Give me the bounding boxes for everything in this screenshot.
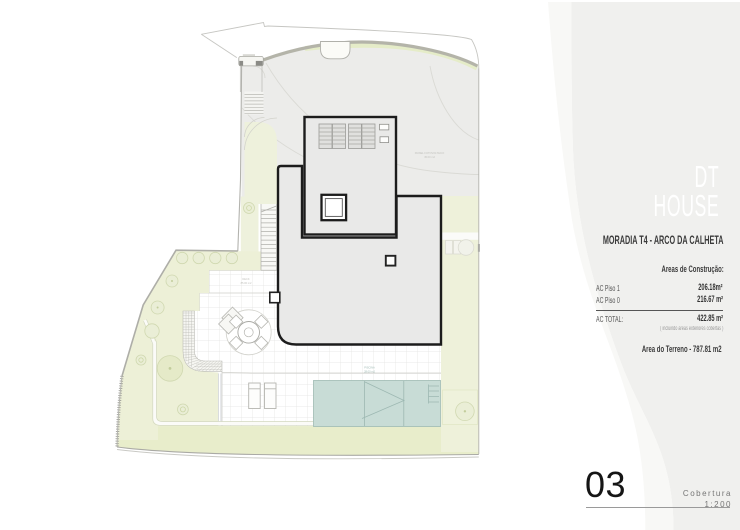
svg-text:PISCINA: PISCINA [364,366,375,370]
svg-text:45.00 m2: 45.00 m2 [424,155,435,159]
svg-text:85.00 m2: 85.00 m2 [241,281,252,285]
svg-text:PAINEL FOTOVOLTAICO: PAINEL FOTOVOLTAICO [415,151,445,155]
svg-text:DECK: DECK [242,277,249,281]
svg-text:28.00 m2: 28.00 m2 [364,370,375,374]
